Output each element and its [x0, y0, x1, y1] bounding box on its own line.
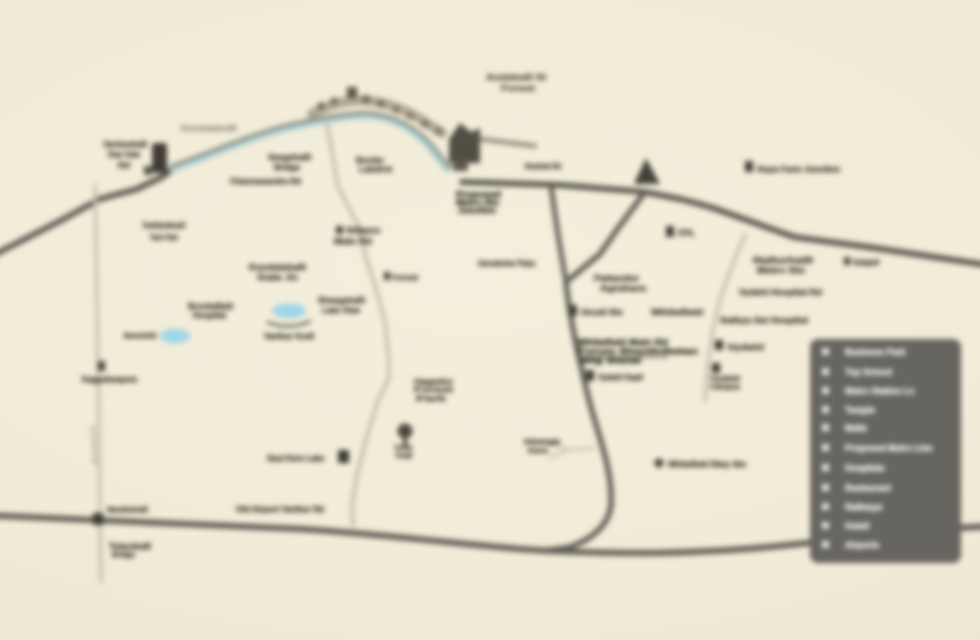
- svg-text:ITPL: ITPL: [678, 229, 695, 238]
- svg-text:Junction: Junction: [458, 206, 496, 215]
- svg-text:Border: Border: [356, 156, 384, 165]
- svg-text:Dam Gate: Dam Gate: [108, 150, 140, 159]
- svg-text:Forum Shantiniketan: Forum Shantiniketan: [578, 346, 698, 356]
- svg-text:Temple: Temple: [845, 405, 875, 415]
- svg-text:Forest: Forest: [392, 273, 419, 282]
- svg-text:Avalahalli St: Avalahalli St: [486, 73, 546, 82]
- svg-text:Hoskote Rd: Hoskote Rd: [525, 162, 561, 171]
- svg-text:Sathya Sai Hospital: Sathya Sai Hospital: [720, 316, 808, 325]
- svg-text:Proposed Metro Line: Proposed Metro Line: [845, 443, 933, 453]
- svg-text:Top School: Top School: [845, 367, 892, 377]
- svg-text:Nallurhalli: Nallurhalli: [753, 256, 813, 265]
- svg-text:Marathahalli: Marathahalli: [107, 505, 148, 514]
- svg-text:Whitefield Rlwy Stn: Whitefield Rlwy Stn: [668, 460, 746, 469]
- svg-text:Vydehi Hsptl: Vydehi Hsptl: [598, 373, 643, 382]
- svg-text:Whitefield: Whitefield: [651, 308, 703, 317]
- svg-text:Saul Kere Lake: Saul Kere Lake: [267, 454, 325, 463]
- svg-text:Restaurant: Restaurant: [845, 483, 891, 493]
- svg-text:Varthur Kodi: Varthur Kodi: [264, 332, 314, 341]
- svg-text:Rachenahalli: Rachenahalli: [104, 140, 147, 149]
- svg-text:Vydehi Hospital Rd: Vydehi Hospital Rd: [739, 288, 822, 297]
- svg-text:Metro Station Ln: Metro Station Ln: [845, 386, 914, 396]
- svg-text:Hospital: Hospital: [193, 311, 226, 320]
- svg-text:Old Airport Varthur Rd: Old Airport Varthur Rd: [236, 505, 324, 514]
- svg-text:Brookefield: Brookefield: [188, 302, 233, 311]
- svg-text:Hope Farm Junction: Hope Farm Junction: [757, 165, 840, 174]
- svg-text:Siddapura: Siddapura: [346, 226, 380, 235]
- svg-text:Kundalahalli: Kundalahalli: [249, 263, 306, 272]
- svg-text:Agrahara: Agrahara: [600, 284, 647, 293]
- svg-text:Business Park: Business Park: [845, 347, 906, 357]
- svg-text:Rd: Rd: [118, 161, 130, 170]
- svg-text:Metro Stn: Metro Stn: [757, 266, 805, 275]
- svg-text:Doddanekundi: Doddanekundi: [143, 221, 185, 230]
- svg-text:Vydehi: Vydehi: [710, 376, 740, 383]
- svg-text:Malls: Malls: [845, 423, 867, 433]
- svg-text:Bridge: Bridge: [274, 163, 301, 172]
- svg-text:Gate Jn: Gate Jn: [257, 273, 298, 282]
- svg-text:Sheegehalli: Sheegehalli: [318, 296, 365, 305]
- svg-text:Campus: Campus: [710, 384, 740, 391]
- svg-text:Munnekollal: Munnekollal: [124, 331, 156, 340]
- svg-text:Kere: Kere: [528, 446, 548, 455]
- svg-text:Trail: Trail: [395, 453, 412, 460]
- svg-text:Seegehalli: Seegehalli: [268, 153, 311, 162]
- svg-text:Kaggadasapura: Kaggadasapura: [82, 375, 137, 384]
- svg-text:Lake View: Lake View: [322, 306, 361, 315]
- svg-text:Forest: Forest: [395, 445, 413, 452]
- svg-text:Vydehi: Vydehi: [727, 343, 764, 352]
- svg-text:Park: Park: [416, 394, 448, 403]
- svg-text:Kadugodi: Kadugodi: [853, 258, 879, 267]
- svg-text:Bridge: Bridge: [112, 550, 135, 559]
- svg-text:Kundalahalli: Kundalahalli: [181, 124, 237, 133]
- svg-text:Forest: Forest: [414, 385, 454, 394]
- svg-text:Garudachar Palya: Garudachar Palya: [478, 258, 535, 268]
- svg-text:Forest: Forest: [501, 84, 535, 93]
- svg-text:Railways: Railways: [845, 502, 883, 512]
- svg-text:Hotell: Hotell: [845, 521, 869, 531]
- svg-text:Hoodi Stn: Hoodi Stn: [581, 308, 623, 317]
- svg-text:Tech Park: Tech Park: [150, 233, 178, 242]
- svg-text:Airports: Airports: [845, 540, 879, 550]
- svg-text:Lakefrnt: Lakefrnt: [359, 165, 392, 174]
- svg-text:Hospitals: Hospitals: [845, 463, 885, 473]
- svg-text:Channasandra Rd: Channasandra Rd: [230, 177, 301, 186]
- svg-text:Main Rd: Main Rd: [334, 237, 372, 246]
- svg-text:Pattandur: Pattandur: [594, 274, 639, 283]
- svg-text:Nelamangala: Nelamangala: [524, 437, 561, 446]
